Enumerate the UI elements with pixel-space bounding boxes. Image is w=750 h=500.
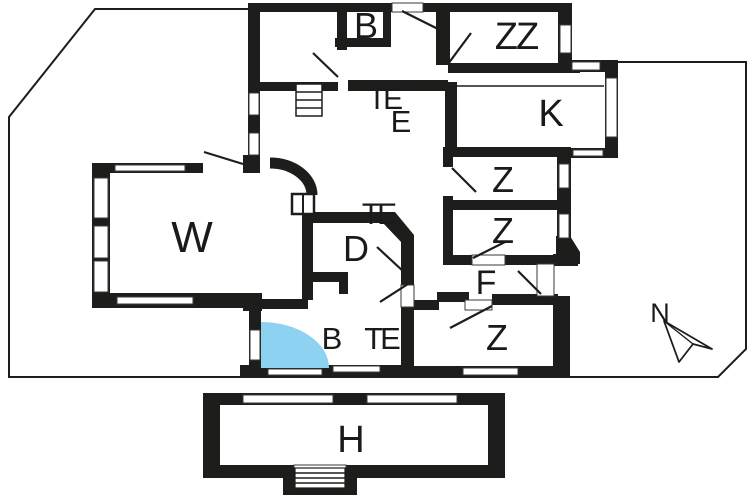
back-door-opening [392, 3, 423, 12]
room-label-living: W [171, 213, 213, 262]
room-label-f: F [476, 264, 497, 302]
room-label-z2: Z [492, 210, 514, 251]
curved-wall [270, 163, 312, 195]
room-label-te-mid: TE [362, 198, 396, 231]
north-arrow: N [650, 298, 712, 362]
room-label-te-bottom: TE [364, 321, 400, 356]
room-label-kitchen: K [538, 93, 563, 135]
staircase-outbuilding [295, 468, 345, 488]
walls [92, 3, 618, 377]
door-swing-d [377, 247, 404, 272]
room-label-d: D [343, 228, 369, 269]
entrance-door-arc [261, 322, 329, 368]
room-label-z1: Z [492, 159, 514, 200]
room-label-e-hall: E [391, 104, 412, 139]
compass-label: N [650, 298, 670, 328]
room-labels: B ZZ TE E K W Z Z TE D F B TE Z H [171, 5, 563, 461]
door-swing-living [204, 152, 243, 164]
room-label-z3: Z [486, 317, 508, 358]
staircase-upper [296, 84, 322, 116]
room-label-zz: ZZ [495, 16, 539, 58]
door-swing-zz [448, 33, 471, 64]
room-label-b-bottom: B [322, 321, 343, 356]
room-label-h: H [337, 419, 364, 461]
door-swing-storage [313, 53, 338, 77]
flue-symbol [292, 194, 314, 214]
room-label-b-top: B [354, 5, 378, 46]
door-swing-back [402, 11, 440, 30]
floor-plan: N B ZZ TE E K W Z Z TE D F B TE Z H [0, 0, 750, 500]
door-swing-z1 [452, 168, 476, 192]
